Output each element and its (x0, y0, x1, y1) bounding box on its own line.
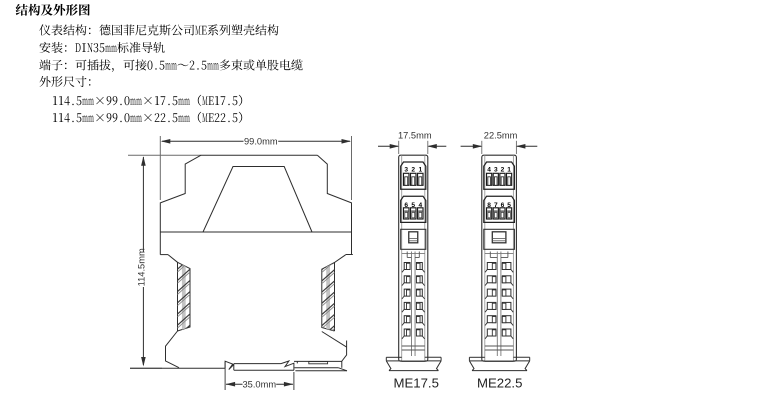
svg-text:114.5mm: 114.5mm (137, 248, 147, 286)
svg-text:35.0mm: 35.0mm (243, 380, 277, 390)
svg-text:1: 1 (418, 167, 422, 174)
svg-text:1: 1 (507, 167, 511, 174)
svg-text:ME22.5: ME22.5 (477, 376, 522, 391)
svg-text:17.5mm: 17.5mm (398, 131, 432, 141)
svg-text:2: 2 (501, 167, 505, 174)
svg-text:99.0mm: 99.0mm (244, 136, 278, 146)
svg-text:3: 3 (494, 167, 498, 174)
svg-text:3: 3 (404, 167, 408, 174)
svg-text:22.5mm: 22.5mm (484, 131, 518, 141)
svg-text:ME17.5: ME17.5 (393, 376, 438, 391)
svg-text:2: 2 (411, 167, 415, 174)
svg-text:4: 4 (487, 167, 491, 174)
